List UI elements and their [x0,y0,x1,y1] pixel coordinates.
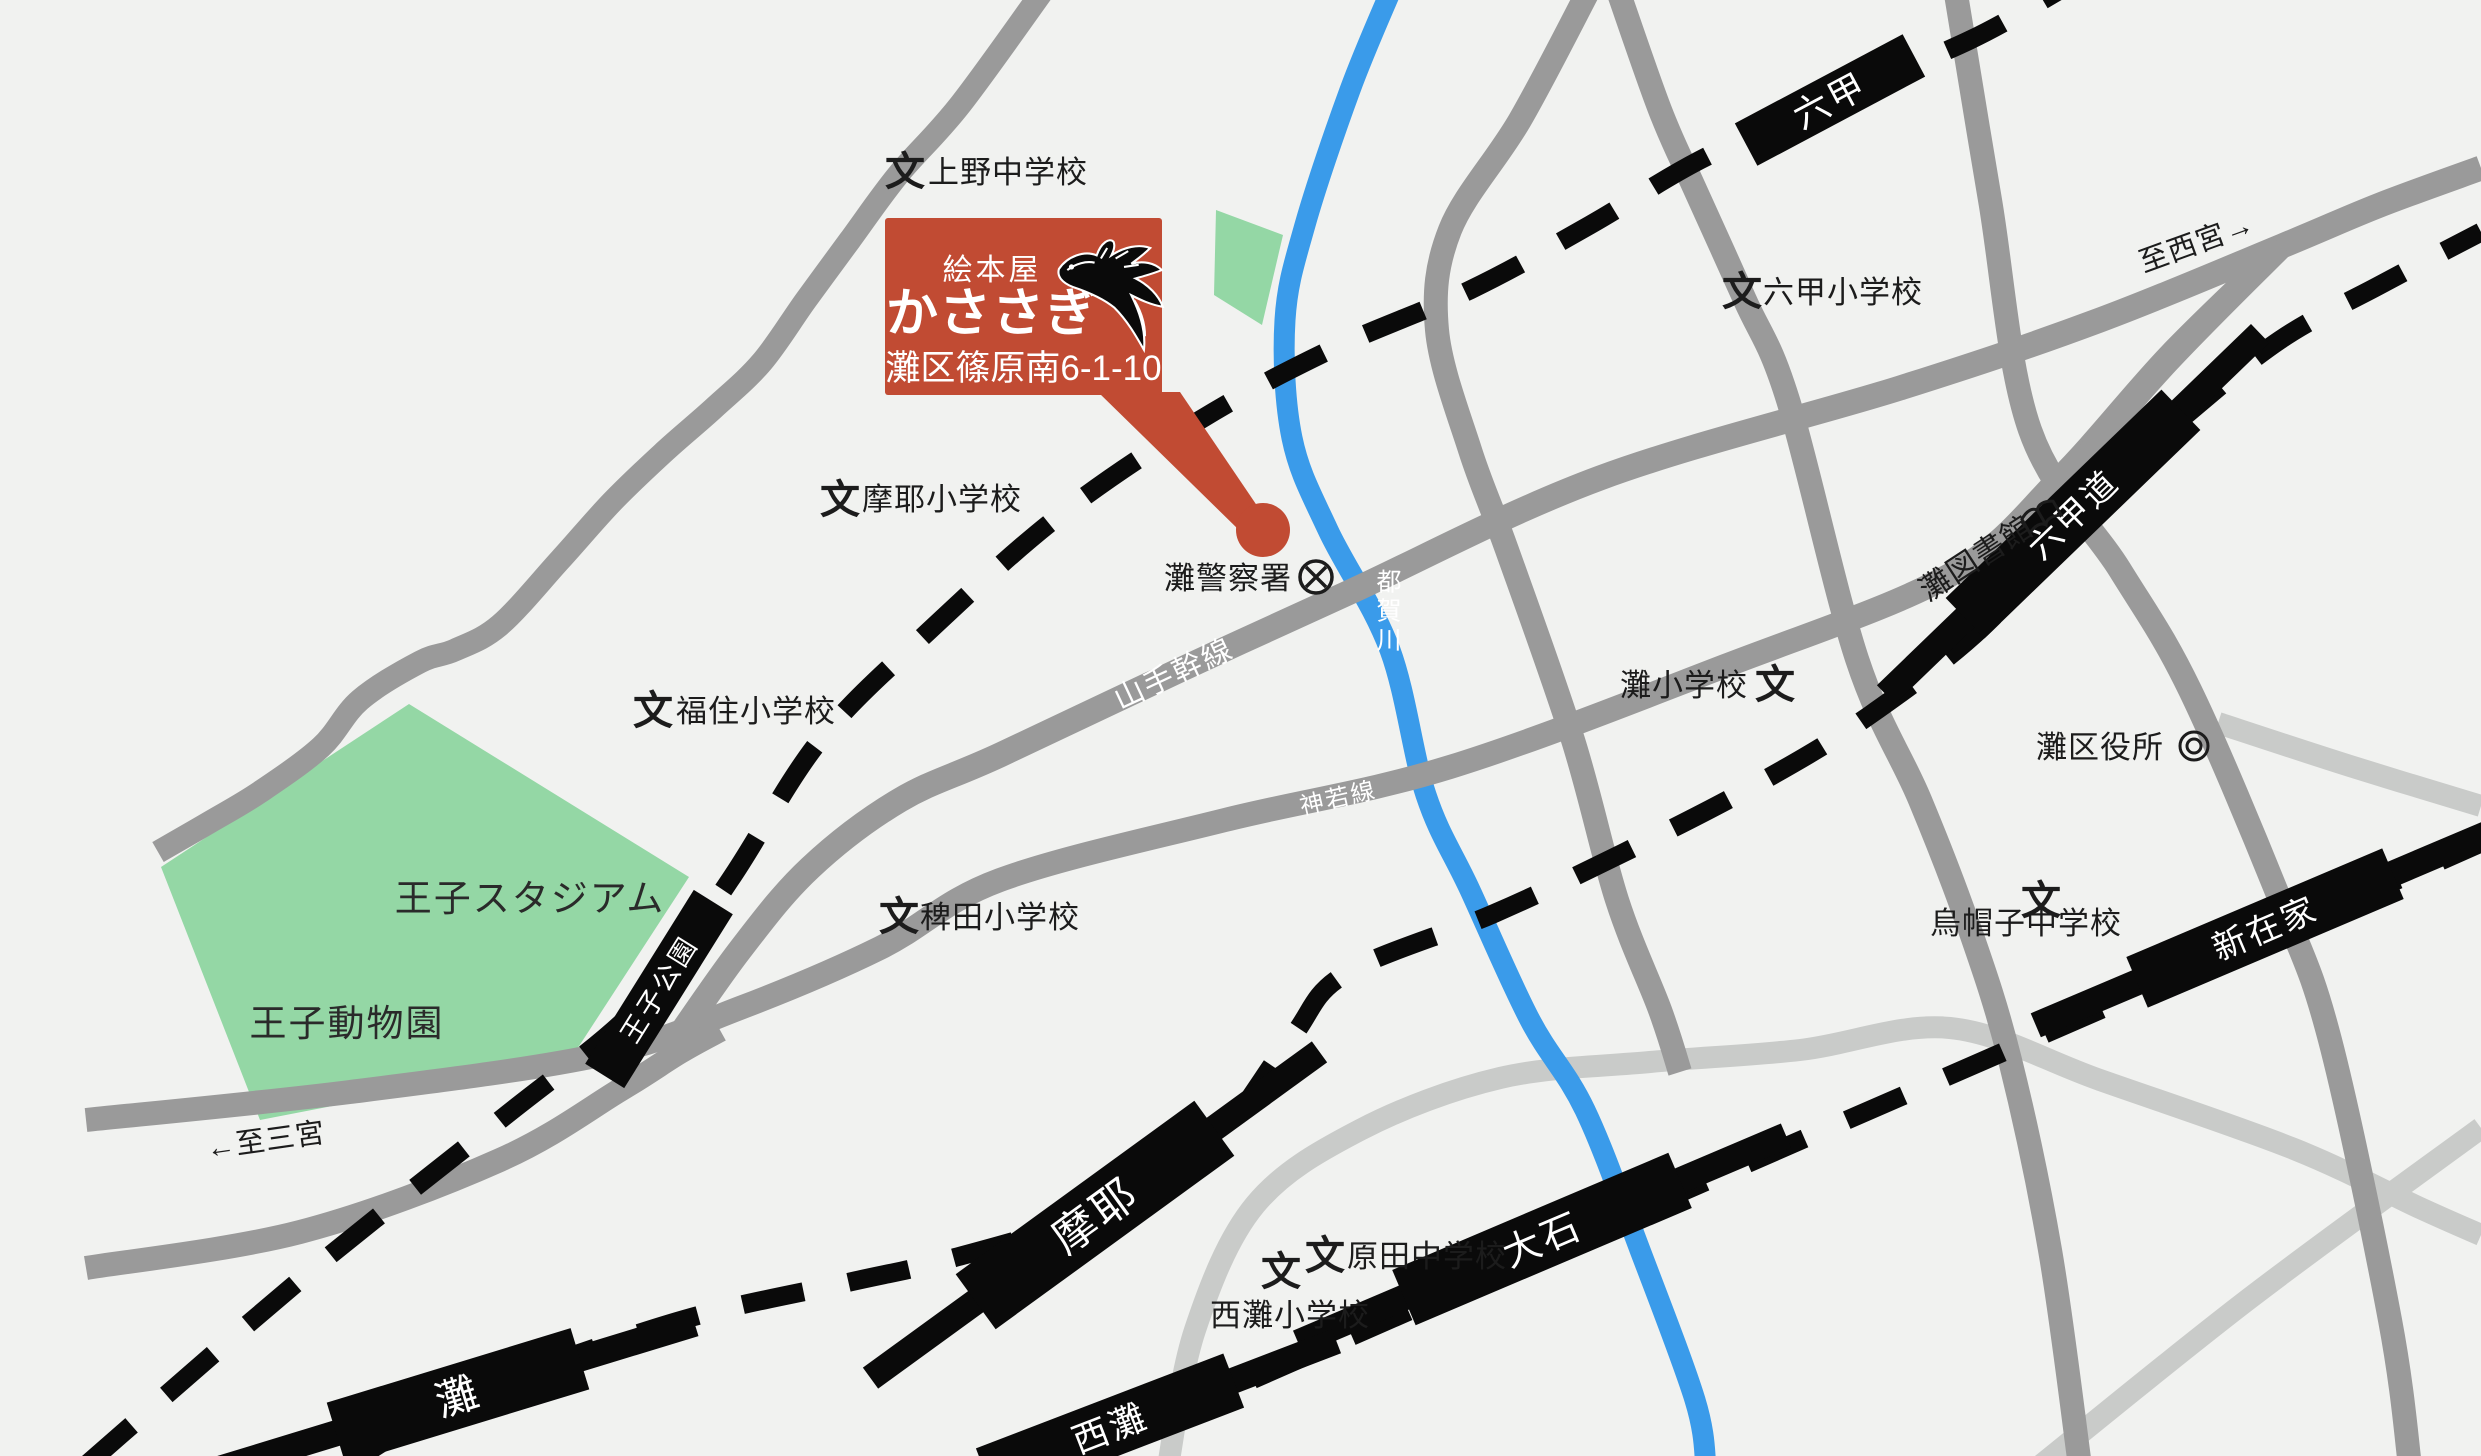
park-label: 王子動物園 [250,1003,445,1044]
school-icon: 文 [885,150,925,194]
park-label: 王子スタジアム [395,878,665,919]
school-icon: 文 [820,478,860,522]
school-label: 上野中学校 [928,155,1088,190]
location-pin [1236,503,1290,557]
access-map: 山手幹線神若線都賀川 六甲王子公園摩耶灘六甲道大石西灘新在家 文上野中学校文摩耶… [0,0,2481,1456]
school-icon: 文 [633,689,673,733]
police-label: 灘警察署 [1164,561,1292,596]
school-label: 灘小学校 [1620,668,1748,703]
school-label: 六甲小学校 [1763,275,1923,310]
police-icon [1300,561,1332,593]
shop-name-top: 絵本屋 [943,254,1042,287]
school-icon: 文 [1755,663,1795,707]
school-label: 烏帽子中学校 [1930,906,2122,941]
ward-label: 灘区役所 [2036,730,2164,765]
magpie-eye [1069,264,1074,269]
school-label: 西灘小学校 [1210,1298,1370,1333]
school-label: 摩耶小学校 [862,482,1022,517]
school-label: 原田中学校 [1347,1239,1507,1274]
shop-address: 灘区篠原南6-1-10 [885,349,1161,388]
school-icon: 文 [1261,1250,1301,1294]
shop-name-main: かささぎ [886,285,1098,343]
school-label: 稗田小学校 [920,900,1080,935]
school-icon: 文 [879,895,919,939]
school-icon: 文 [1305,1234,1345,1278]
river-label: 都賀川 [1373,569,1402,656]
school-label: 福住小学校 [676,694,836,729]
map-canvas: 山手幹線神若線都賀川 六甲王子公園摩耶灘六甲道大石西灘新在家 文上野中学校文摩耶… [0,0,2481,1456]
school-icon: 文 [1722,270,1762,314]
